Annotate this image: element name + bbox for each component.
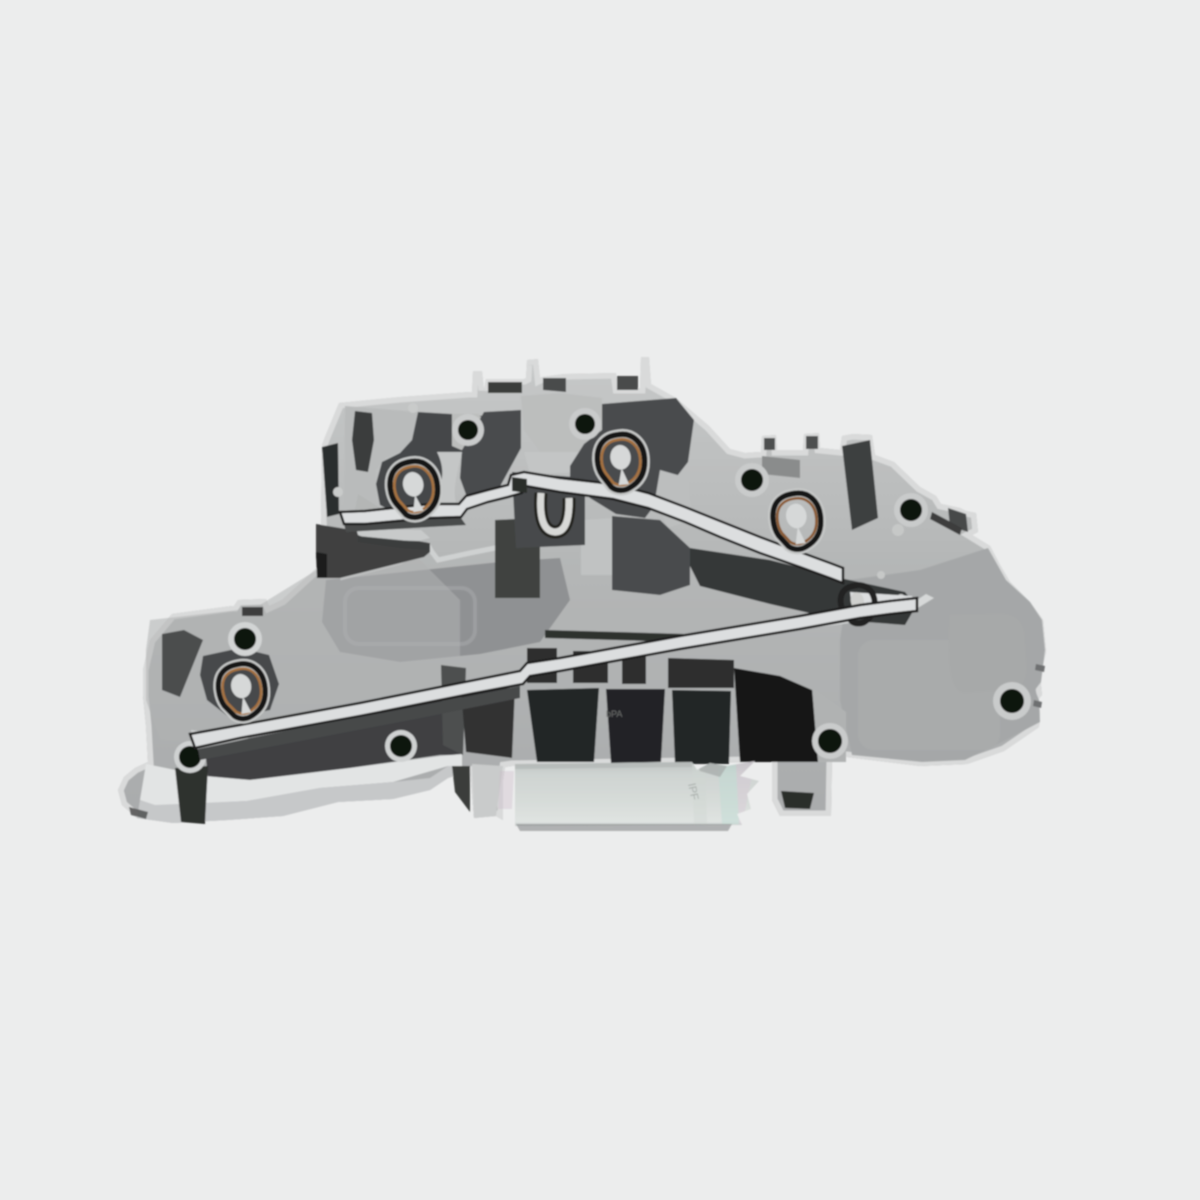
svg-text:bPA: bPA xyxy=(606,709,622,719)
